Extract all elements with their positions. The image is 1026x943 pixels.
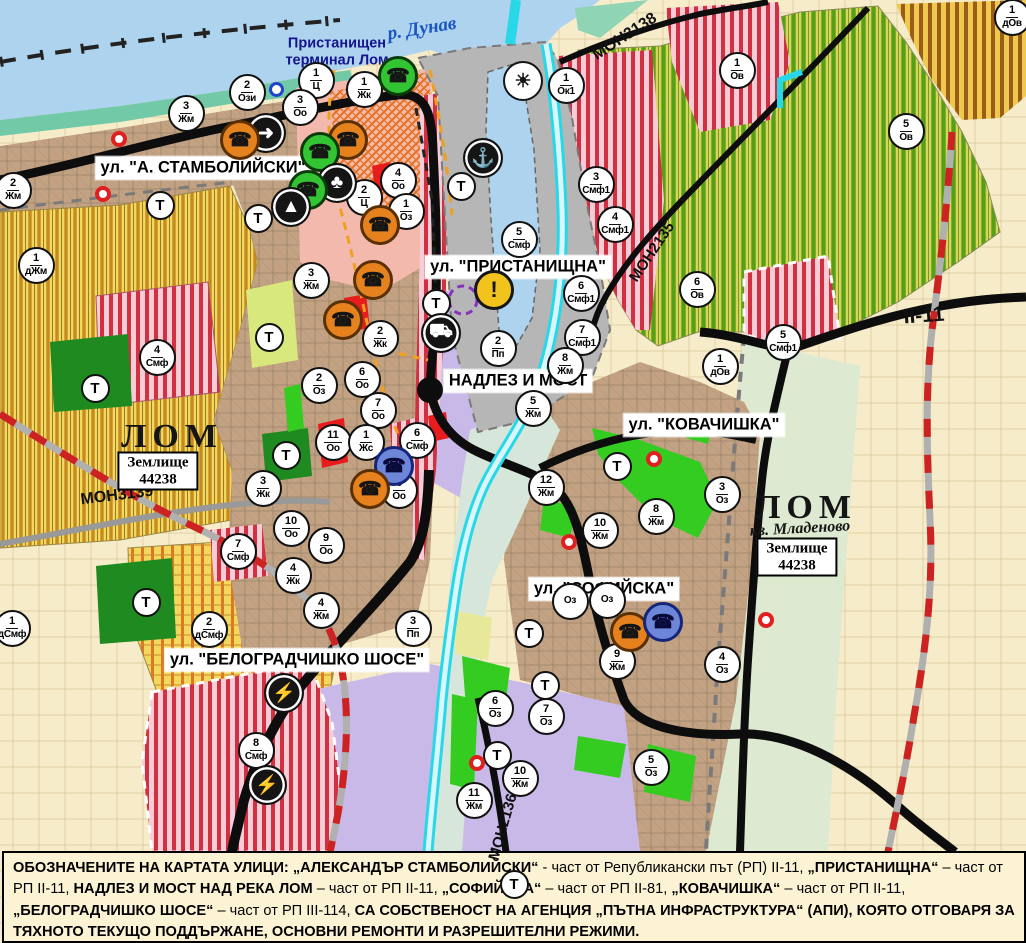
street-label: ул. "КОВАЧИШКА"	[624, 414, 785, 437]
zone-badge: Оз	[589, 582, 626, 619]
road-code-label: II-11	[903, 303, 945, 330]
transport-zone-badge: Т	[272, 441, 301, 470]
legend-text-segment: – част от РП II-11,	[780, 881, 905, 897]
legend-text-segment: – част от РП III-114,	[213, 903, 354, 919]
transport-zone-badge: Т	[255, 323, 284, 352]
zone-badge: 2дСмф	[191, 611, 228, 648]
street-label: ул. "А. СТАМБОЛИЙСКИ"	[96, 157, 311, 180]
legend-text-segment: „ПРИСТАНИЩНА“	[807, 860, 938, 876]
zoning-map-canvas[interactable]: ОБОЗНАЧЕНИТЕ НА КАРТАТА УЛИЦИ: „АЛЕКСАНД…	[0, 0, 1026, 943]
zone-badge: 5Оз	[633, 749, 670, 786]
legend-text-segment: – част от РП II-81,	[541, 881, 671, 897]
transport-zone-badge: Т	[531, 671, 560, 700]
zone-badge: 6Смф1	[563, 275, 600, 312]
anchor-icon: ⚓	[463, 138, 503, 178]
zone-badge: 10Жм	[582, 512, 619, 549]
phone-icon: ☎	[643, 602, 683, 642]
zone-badge: 3Пп	[395, 610, 432, 647]
legend-text-segment: ОБОЗНАЧЕНИТЕ НА КАРТАТА УЛИЦИ: „АЛЕКСАНД…	[13, 860, 538, 876]
zone-badge: 6Ов	[679, 271, 716, 308]
zone-badge: 6Оз	[477, 690, 514, 727]
land-register-box: Землище44238	[756, 538, 837, 577]
zone-badge: 3Смф1	[578, 166, 615, 203]
zone-badge: Оз	[552, 583, 589, 620]
transport-zone-badge: Т	[515, 619, 544, 648]
sun-icon: ☀	[503, 61, 543, 101]
zone-badge: 1Жк	[346, 71, 383, 108]
zone-badge: 4Смф1	[597, 206, 634, 243]
land-register-box: Землище44238	[117, 452, 198, 491]
zone-badge: 4Жк	[275, 557, 312, 594]
lightning-icon: ⚡	[264, 673, 304, 713]
zone-badge: 5Смф	[501, 221, 538, 258]
zone-badge: 3Жм	[168, 95, 205, 132]
zone-badge: 9Оо	[308, 527, 345, 564]
zone-badge: 4Смф	[139, 339, 176, 376]
zone-badge: 5Жм	[515, 390, 552, 427]
transport-zone-badge: Т	[500, 870, 529, 899]
zone-badge: 3Оо	[282, 89, 319, 126]
zone-badge: 2Жм	[0, 172, 32, 209]
legend-text-segment: НАДЛЕЗ И МОСТ НАД РЕКА ЛОМ	[74, 881, 313, 897]
zone-badge: 1Ов	[719, 52, 756, 89]
zone-badge: 4Жм	[303, 592, 340, 629]
lightning-icon: ⚡	[247, 765, 287, 805]
zone-badge: 7Смф	[220, 533, 257, 570]
truck-icon: ⛟	[421, 313, 461, 353]
zone-badge: 8Жм	[547, 347, 584, 384]
legend-text-segment: – част от РП II-11,	[313, 881, 442, 897]
poi-red-dot	[111, 131, 127, 147]
zone-badge: 3Жм	[293, 262, 330, 299]
zone-badge: 12Жм	[528, 469, 565, 506]
zone-badge: 3Жк	[245, 470, 282, 507]
zone-badge: 11Жм	[456, 782, 493, 819]
phone-icon: ☎	[323, 300, 363, 340]
transport-zone-badge: Т	[483, 741, 512, 770]
poi-blue-ring	[269, 82, 284, 97]
zone-badge: 1дОв	[994, 0, 1026, 36]
zone-badge: 7Оз	[528, 698, 565, 735]
zone-badge: 1дОв	[702, 348, 739, 385]
zone-badge: 10Оо	[273, 510, 310, 547]
transport-zone-badge: Т	[447, 172, 476, 201]
zone-badge: 1Ок1	[548, 67, 585, 104]
phone-icon: ☎	[350, 469, 390, 509]
zone-badge: 7Оо	[360, 392, 397, 429]
phone-icon: ☎	[220, 120, 260, 160]
transport-zone-badge: Т	[146, 191, 175, 220]
legend-text-segment: „БЕЛОГРАДЧИШКО ШОСЕ“	[13, 903, 213, 919]
transport-zone-badge: Т	[603, 452, 632, 481]
phone-icon: ☎	[360, 205, 400, 245]
transport-zone-badge: Т	[132, 588, 161, 617]
legend-text-segment: „КОВАЧИШКА“	[671, 881, 780, 897]
zone-badge: 2Жк	[362, 320, 399, 357]
zone-badge: 8Смф	[238, 732, 275, 769]
zone-badge: 1дСмф	[0, 610, 31, 647]
zone-badge: 5Ов	[888, 113, 925, 150]
mountain-icon: ▲	[271, 187, 311, 227]
zone-badge: 4Оз	[704, 646, 741, 683]
poi-red-dot	[646, 451, 662, 467]
zone-badge: 8Жм	[638, 498, 675, 535]
zone-badge: 1дЖм	[18, 247, 55, 284]
warning-icon: !	[474, 270, 514, 310]
zone-badge: 2Пп	[480, 330, 517, 367]
zone-badge: 5Смф1	[765, 324, 802, 361]
terminal-label: Пристанищен терминал Лом	[285, 35, 388, 68]
zone-badge: 11Оо	[315, 424, 352, 461]
phone-icon: ☎	[378, 56, 418, 96]
zone-badge: 2Оз	[301, 367, 338, 404]
zone-badge: 3Оз	[704, 476, 741, 513]
transport-zone-badge: Т	[81, 374, 110, 403]
poi-red-dot	[561, 534, 577, 550]
city-label: ЛОМ	[121, 418, 223, 456]
street-label: ул. "БЕЛОГРАДЧИШКО ШОСЕ"	[165, 649, 429, 672]
poi-red-dot	[469, 755, 485, 771]
zone-badge: 2Ози	[229, 74, 266, 111]
phone-icon: ☎	[353, 260, 393, 300]
poi-red-dot	[758, 612, 774, 628]
poi-red-dot	[95, 186, 111, 202]
transport-zone-badge: Т	[244, 204, 273, 233]
legend-text-segment: - част от Републикански път (РП) II-11,	[538, 860, 807, 876]
